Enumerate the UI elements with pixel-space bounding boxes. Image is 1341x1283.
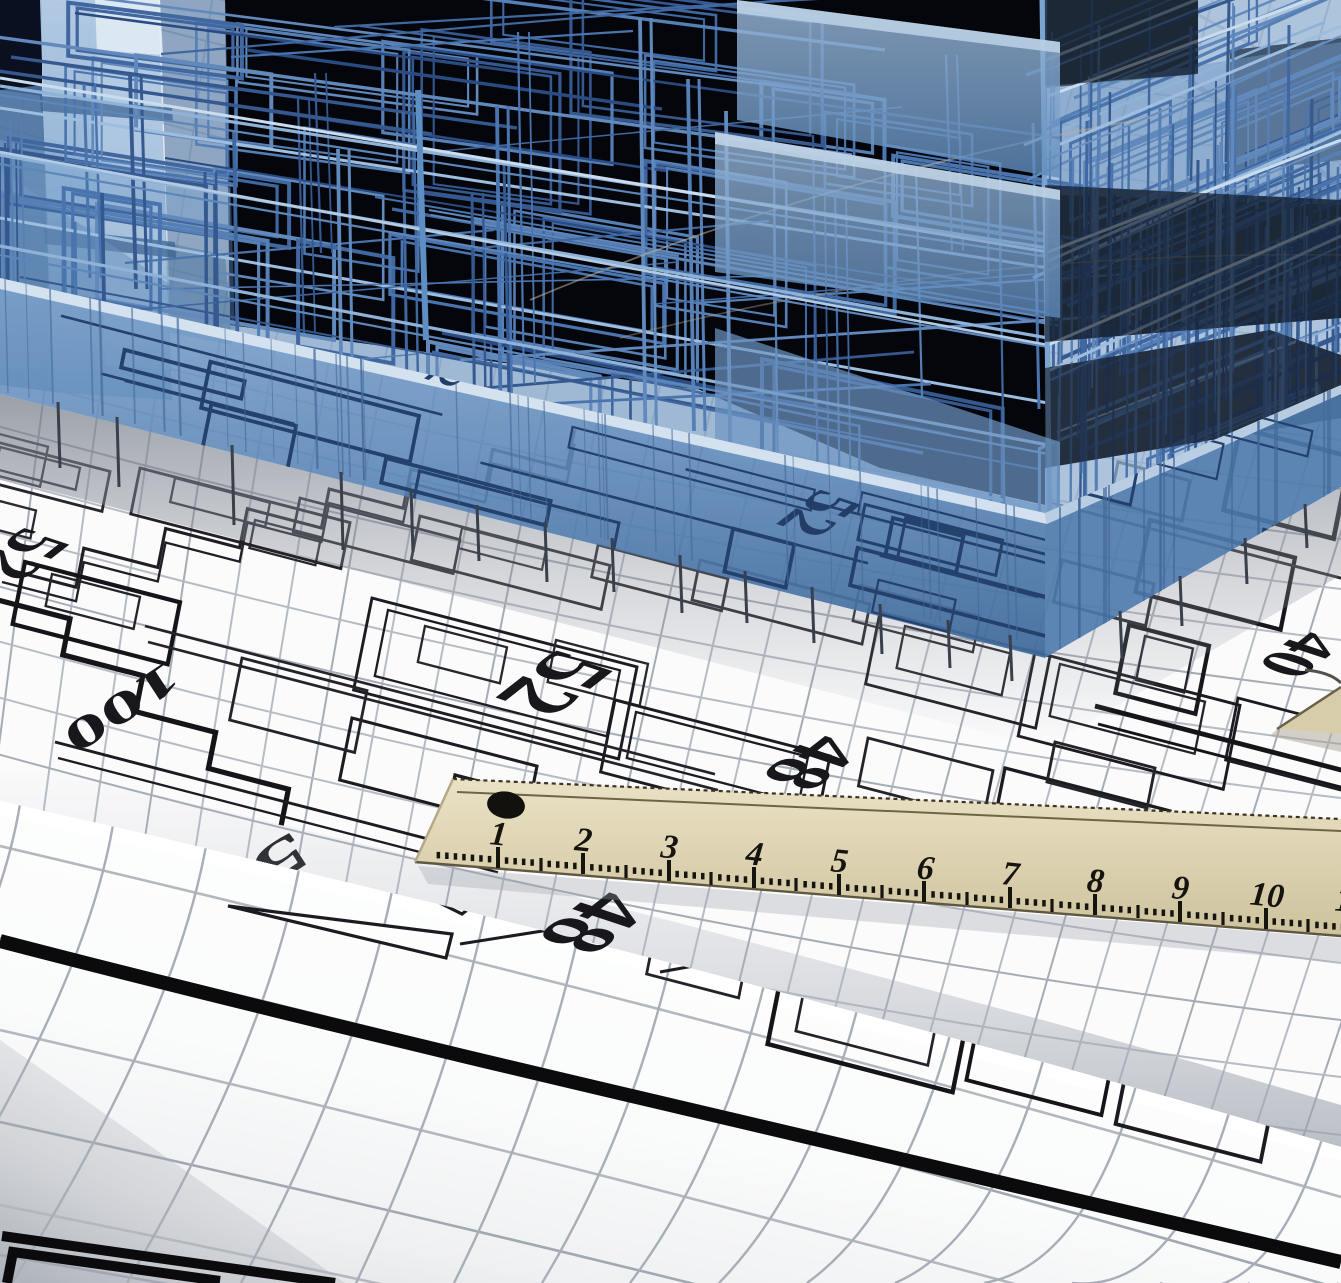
svg-text:10: 10 [1248,875,1286,915]
